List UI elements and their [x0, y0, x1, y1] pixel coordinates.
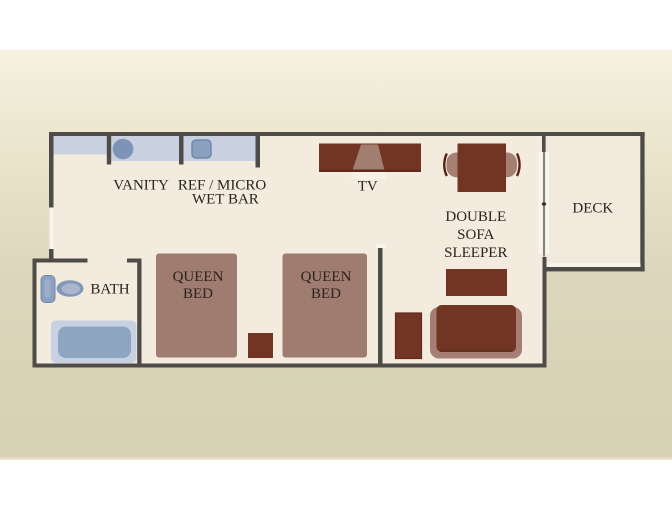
svg-text:DOUBLE: DOUBLE	[445, 209, 506, 225]
svg-text:BED: BED	[183, 286, 213, 302]
svg-text:TV: TV	[358, 179, 378, 195]
svg-text:BED: BED	[311, 286, 341, 302]
svg-text:BATH: BATH	[90, 282, 129, 298]
svg-text:WET BAR: WET BAR	[192, 192, 259, 208]
svg-text:DECK: DECK	[572, 200, 613, 216]
svg-text:VANITY: VANITY	[113, 177, 169, 193]
svg-text:QUEEN: QUEEN	[173, 269, 224, 285]
svg-text:SOFA: SOFA	[457, 227, 494, 243]
svg-text:SLEEPER: SLEEPER	[444, 245, 507, 261]
svg-text:QUEEN: QUEEN	[301, 269, 352, 285]
